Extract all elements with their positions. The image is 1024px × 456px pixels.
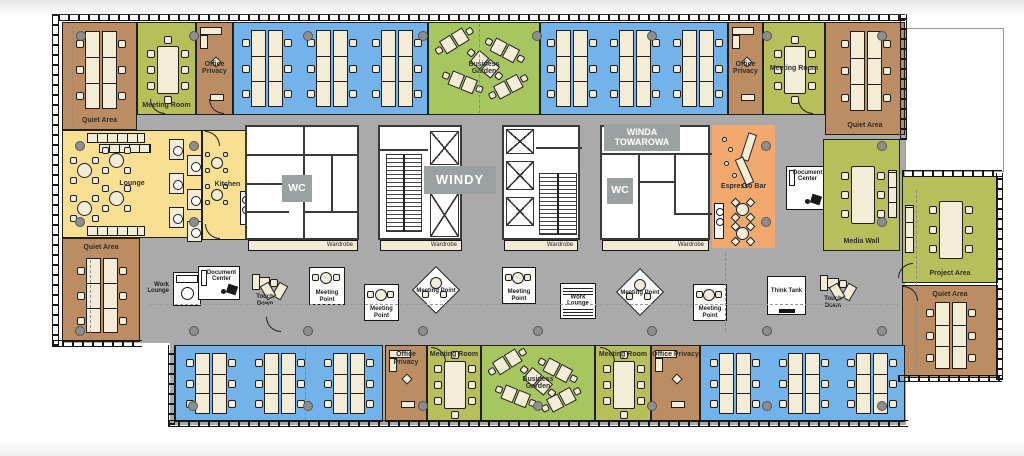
chair xyxy=(312,274,319,281)
chair xyxy=(968,354,976,362)
pod-label: Think Tank xyxy=(767,288,806,294)
chair xyxy=(372,65,380,73)
chair xyxy=(841,210,849,218)
terrace-wall xyxy=(902,170,1002,177)
structural-column xyxy=(877,217,887,227)
meeting-table xyxy=(851,166,875,224)
room-quiet-area-nw: Quiet Area xyxy=(62,22,137,130)
chair xyxy=(119,317,127,325)
chair xyxy=(297,380,305,388)
chair xyxy=(414,65,422,73)
cabinet-strip xyxy=(888,170,897,218)
chair xyxy=(965,206,973,214)
chair xyxy=(889,400,897,408)
chair xyxy=(808,82,816,90)
chair xyxy=(847,400,855,408)
chair xyxy=(710,400,718,408)
chair xyxy=(70,157,77,164)
exterior-wall-south-step xyxy=(168,345,175,425)
side-table xyxy=(401,401,415,408)
pod-meeting-point-4: Meeting Point xyxy=(502,267,536,304)
wardrobe-strip: Wardrobe xyxy=(380,240,462,251)
sofa xyxy=(563,307,593,316)
structural-column xyxy=(303,31,313,41)
chair xyxy=(434,397,442,405)
structural-column xyxy=(76,31,86,41)
core-partition xyxy=(602,153,712,155)
room-label: Office Privacy xyxy=(197,61,232,77)
pod-label: Touch Down xyxy=(818,296,848,309)
desk-bench xyxy=(251,30,266,107)
room-label: Media Wall xyxy=(824,238,899,246)
chair xyxy=(671,374,682,385)
elevator-shaft xyxy=(506,197,534,226)
chair xyxy=(673,90,681,98)
round-table xyxy=(512,272,524,284)
chair xyxy=(284,90,292,98)
stair-divider xyxy=(403,154,405,232)
desk-bench xyxy=(398,30,413,107)
chair xyxy=(547,65,555,73)
chair xyxy=(242,39,250,47)
desk xyxy=(732,35,740,49)
desk-cluster xyxy=(333,353,365,414)
chair xyxy=(255,359,263,367)
chair xyxy=(929,206,937,214)
chair xyxy=(349,90,357,98)
desk-cluster xyxy=(788,353,820,414)
chair xyxy=(124,147,131,154)
printer-icon xyxy=(226,284,238,296)
chair xyxy=(547,90,555,98)
desk-bench xyxy=(850,31,865,111)
chair xyxy=(752,380,760,388)
chair xyxy=(147,50,155,58)
chair xyxy=(223,200,228,205)
pod-label: Meeting Point xyxy=(693,306,727,319)
chair xyxy=(307,90,315,98)
desk-bench xyxy=(333,30,348,107)
room-business-garden-n: Business Garden xyxy=(428,22,540,115)
chair xyxy=(164,36,172,44)
chair xyxy=(839,280,847,288)
side-table xyxy=(671,401,685,408)
chair xyxy=(118,92,126,100)
chair xyxy=(965,226,973,234)
pod-meeting-point-1: Meeting Point xyxy=(309,267,345,305)
wardrobe-label: Wardrobe xyxy=(327,242,353,248)
chair xyxy=(255,400,263,408)
desk-cluster xyxy=(850,31,882,111)
exterior-wall-sw xyxy=(52,340,142,347)
chair xyxy=(841,40,849,48)
structural-column xyxy=(762,401,772,411)
page-top-gradient xyxy=(0,0,1024,16)
core-partition xyxy=(640,181,676,183)
meeting-table xyxy=(939,201,963,259)
chair xyxy=(186,359,194,367)
chair xyxy=(774,82,782,90)
chair xyxy=(102,205,109,212)
grid-dashed-line xyxy=(72,26,73,126)
chair xyxy=(847,359,855,367)
desk-bench xyxy=(856,353,871,414)
chair xyxy=(372,90,380,98)
desk-cluster xyxy=(935,302,967,369)
room-label: Business Garden xyxy=(429,61,539,77)
chair xyxy=(255,380,263,388)
elevator-shaft xyxy=(506,161,534,190)
desk-bench xyxy=(381,30,396,107)
chair xyxy=(791,36,799,44)
chair xyxy=(284,65,292,73)
desk-cluster xyxy=(264,353,296,414)
desk-cluster xyxy=(316,30,348,107)
chair xyxy=(468,397,476,405)
desk xyxy=(655,358,663,372)
desk-cluster xyxy=(719,353,751,414)
room-label: Lounge xyxy=(63,180,201,188)
structural-column xyxy=(75,141,85,151)
chair xyxy=(889,359,897,367)
chair xyxy=(637,397,645,405)
exterior-wall-left xyxy=(52,14,59,346)
chair xyxy=(779,400,787,408)
chair xyxy=(468,381,476,389)
round-table xyxy=(320,272,332,284)
pod-label: Meeting Point xyxy=(412,288,460,294)
desk-bench xyxy=(264,353,279,414)
chair xyxy=(505,274,512,281)
chair xyxy=(752,359,760,367)
pod-meeting-point-2: Meeting Point xyxy=(364,284,399,321)
desk-bench xyxy=(556,30,571,107)
pod-label: Meeting Point xyxy=(502,289,536,302)
chair xyxy=(92,157,99,164)
desk-cluster xyxy=(195,353,227,414)
chair xyxy=(181,82,189,90)
chair xyxy=(228,400,236,408)
chair xyxy=(589,39,597,47)
chair xyxy=(589,90,597,98)
round-table xyxy=(77,201,92,216)
winda-towarowa-label-box: WINDA TOWAROWA xyxy=(604,124,680,151)
core-partition xyxy=(536,147,582,149)
chair xyxy=(746,237,756,247)
stair-divider xyxy=(557,173,559,235)
desk-bench xyxy=(573,30,588,107)
printer-icon xyxy=(805,199,810,204)
sofa xyxy=(563,286,593,295)
meeting-table xyxy=(613,361,635,409)
exterior-wall-wing xyxy=(996,173,1003,380)
desk-cluster xyxy=(682,30,714,107)
building-core-stairs-east xyxy=(502,125,580,240)
chair xyxy=(70,195,77,202)
core-partition xyxy=(380,149,428,151)
desk-bench xyxy=(682,30,697,107)
chair xyxy=(124,167,131,174)
chair xyxy=(652,90,660,98)
chair xyxy=(847,380,855,388)
chair xyxy=(119,292,127,300)
desk-bench xyxy=(316,30,331,107)
grid-dashed-line xyxy=(150,304,898,305)
round-table xyxy=(703,289,715,301)
coffee-counter xyxy=(714,203,724,239)
chair xyxy=(297,359,305,367)
cabinet-strip xyxy=(905,205,914,253)
chair xyxy=(387,291,394,298)
chair xyxy=(205,152,210,157)
media-ledge xyxy=(779,309,795,313)
chair xyxy=(968,332,976,340)
structural-column xyxy=(189,326,199,336)
meeting-table xyxy=(157,46,179,94)
high-table xyxy=(169,207,184,228)
structural-column xyxy=(761,217,771,227)
desk-bench xyxy=(636,30,651,107)
pod-label: Document Center xyxy=(205,270,238,283)
room-label: Office Privacy xyxy=(652,351,699,359)
chair xyxy=(841,172,849,180)
core-partition xyxy=(305,211,357,213)
chair xyxy=(366,359,374,367)
core-partition xyxy=(676,213,712,215)
structural-column xyxy=(189,141,199,151)
chair xyxy=(118,40,126,48)
chair xyxy=(610,65,618,73)
desk-cluster xyxy=(619,30,651,107)
chair xyxy=(205,200,210,205)
chair xyxy=(76,40,84,48)
chair xyxy=(324,400,332,408)
chair xyxy=(147,82,155,90)
desk-bench xyxy=(952,302,967,369)
printer-icon xyxy=(810,194,822,206)
structural-column xyxy=(75,326,85,336)
pod-touch-down-1: Touch Down xyxy=(252,266,290,306)
desk-bench xyxy=(788,353,803,414)
chair xyxy=(119,267,127,275)
round-table xyxy=(77,163,92,178)
chair xyxy=(883,94,891,102)
terrace xyxy=(905,28,1004,172)
wardrobe-label: Wardrobe xyxy=(431,242,457,248)
structural-column xyxy=(418,401,428,411)
chair xyxy=(284,39,292,47)
desk-cluster xyxy=(251,30,283,107)
room-label: Espresso Bar xyxy=(712,183,775,191)
room-meeting-room-1: Meeting Room xyxy=(137,22,196,115)
chair xyxy=(147,66,155,74)
chair xyxy=(349,65,357,73)
chair xyxy=(752,400,760,408)
meeting-table xyxy=(444,361,466,409)
wardrobe-strip: Wardrobe xyxy=(248,240,358,251)
wardrobe-strip: Wardrobe xyxy=(504,240,578,251)
pod-document-center-2: Document Center xyxy=(786,166,824,210)
chair xyxy=(637,381,645,389)
chair xyxy=(324,359,332,367)
chair xyxy=(434,365,442,373)
room-open-office-n1 xyxy=(233,22,428,115)
chair xyxy=(372,39,380,47)
elevator-shaft xyxy=(430,131,459,165)
pod-meeting-point-3: Meeting Point xyxy=(412,266,460,314)
pod-label: Work Lounge xyxy=(560,295,596,308)
pod-think-tank: Think Tank xyxy=(767,276,806,315)
room-label: Business Garden xyxy=(482,376,594,392)
chair xyxy=(610,39,618,47)
chair xyxy=(603,365,611,373)
desk-bench xyxy=(699,30,714,107)
structural-column xyxy=(647,326,657,336)
pod-work-lounge-2: Work Lounge xyxy=(560,283,596,319)
chair xyxy=(547,39,555,47)
chair xyxy=(434,381,442,389)
high-table xyxy=(187,155,202,176)
desk xyxy=(200,27,222,35)
chair xyxy=(673,39,681,47)
chair xyxy=(589,65,597,73)
chair xyxy=(77,267,85,275)
grid-dashed-line xyxy=(305,347,306,420)
desk-bench xyxy=(103,258,118,333)
chair xyxy=(929,226,937,234)
chair xyxy=(883,67,891,75)
cabinet xyxy=(820,275,828,291)
room-media-wall: Media Wall xyxy=(823,139,900,251)
chair xyxy=(228,380,236,388)
desk xyxy=(200,35,208,49)
pod-label: Document Center xyxy=(793,170,822,183)
chair xyxy=(929,245,937,253)
grid-dashed-line xyxy=(479,24,480,113)
wc-label-box-west: WC xyxy=(282,175,312,202)
round-table xyxy=(109,191,124,206)
room-office-privacy-4: Office Privacy xyxy=(651,345,700,422)
chair xyxy=(779,359,787,367)
chair xyxy=(710,359,718,367)
chair xyxy=(841,94,849,102)
chair xyxy=(242,65,250,73)
pod-touch-down-2: Touch Down xyxy=(820,266,860,308)
high-table xyxy=(169,139,184,160)
chair xyxy=(102,147,109,154)
wardrobe-strip: Wardrobe xyxy=(602,240,709,251)
chair xyxy=(926,332,934,340)
structural-column xyxy=(647,31,657,41)
desk xyxy=(732,27,754,35)
room-label: Office Privacy xyxy=(729,61,762,77)
core-partition xyxy=(638,155,640,242)
angled-desk-pair xyxy=(492,348,524,376)
chair xyxy=(228,359,236,367)
structural-column xyxy=(418,31,428,41)
chair xyxy=(715,65,723,73)
room-label: Quiet Area xyxy=(826,122,904,130)
chair xyxy=(610,90,618,98)
room-label: Meeting Room xyxy=(764,65,824,73)
round-table xyxy=(375,289,387,301)
chair xyxy=(124,205,131,212)
wardrobe-label: Wardrobe xyxy=(547,242,573,248)
structural-column xyxy=(761,141,771,151)
desk-cluster xyxy=(85,31,117,109)
chair xyxy=(841,191,849,199)
windy-label-box: WINDY xyxy=(424,166,496,194)
bar-counter xyxy=(732,133,762,185)
chair xyxy=(401,374,412,385)
structural-column xyxy=(303,326,313,336)
structural-column xyxy=(877,326,887,336)
desk-bench xyxy=(736,353,751,414)
exterior-wall-se xyxy=(898,375,1002,382)
room-meeting-room-2: Meeting Room xyxy=(763,22,825,115)
desk-bench xyxy=(805,353,820,414)
structural-column xyxy=(762,326,772,336)
structural-column xyxy=(189,217,199,227)
structural-column xyxy=(647,401,657,411)
pod-label: Touch Down xyxy=(250,294,280,307)
chair xyxy=(673,65,681,73)
chair xyxy=(877,191,885,199)
chair xyxy=(333,274,340,281)
structural-column xyxy=(75,217,85,227)
printer-icon xyxy=(221,289,226,294)
room-quiet-area-sw: Quiet Area xyxy=(62,238,140,342)
chair xyxy=(307,65,315,73)
structural-column xyxy=(532,31,542,41)
chair xyxy=(696,291,703,298)
chair xyxy=(76,92,84,100)
chair xyxy=(774,50,782,58)
chair xyxy=(349,39,357,47)
desk-bench xyxy=(86,258,101,333)
pod-label: Meeting Point xyxy=(364,306,399,319)
pod-document-center-1: Document Center xyxy=(198,266,240,300)
core-partition xyxy=(331,156,333,211)
chair xyxy=(821,400,829,408)
room-label: Quiet Area xyxy=(63,244,139,252)
desk-bench xyxy=(719,353,734,414)
bar-stool xyxy=(724,161,729,166)
side-table xyxy=(741,94,755,101)
room-label: Quiet Area xyxy=(63,117,136,125)
chair xyxy=(883,40,891,48)
chair xyxy=(965,245,973,253)
structural-column xyxy=(189,31,199,41)
chair xyxy=(223,168,228,173)
desk-bench xyxy=(935,302,950,369)
desk-bench xyxy=(619,30,634,107)
chair xyxy=(926,354,934,362)
chair xyxy=(324,380,332,388)
elevator-shaft xyxy=(506,129,534,154)
wardrobe-label: Wardrobe xyxy=(678,242,704,248)
wc-label-box-east: WC xyxy=(607,178,633,204)
chair xyxy=(715,90,723,98)
structural-column xyxy=(188,401,198,411)
round-table xyxy=(109,153,124,168)
round-table xyxy=(211,189,223,201)
chair xyxy=(715,39,723,47)
grid-dashed-line xyxy=(725,253,726,331)
chair xyxy=(841,67,849,75)
chair xyxy=(715,291,722,298)
chair xyxy=(77,292,85,300)
